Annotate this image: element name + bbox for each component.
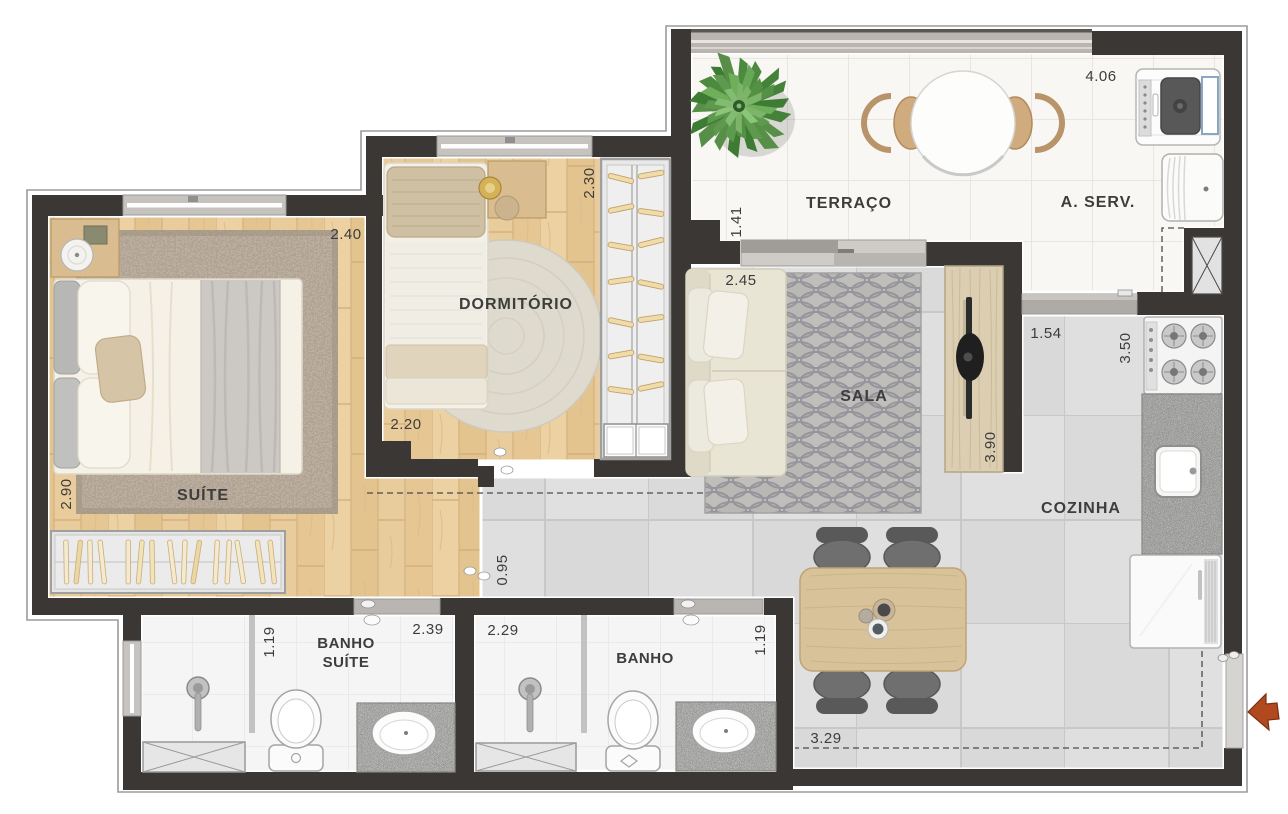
svg-text:1.54: 1.54 <box>1030 325 1061 342</box>
svg-text:0.95: 0.95 <box>494 554 511 585</box>
svg-text:SALA: SALA <box>840 388 888 405</box>
svg-text:2.29: 2.29 <box>487 622 518 639</box>
svg-text:2.90: 2.90 <box>58 478 75 509</box>
svg-text:TERRAÇO: TERRAÇO <box>806 195 892 212</box>
svg-text:BANHO: BANHO <box>317 635 375 652</box>
svg-text:1.19: 1.19 <box>752 624 769 655</box>
svg-text:1.41: 1.41 <box>728 206 745 237</box>
svg-text:BANHO: BANHO <box>616 650 674 667</box>
svg-text:3.90: 3.90 <box>982 431 999 462</box>
svg-text:SUÍTE: SUÍTE <box>177 485 229 504</box>
svg-text:3.50: 3.50 <box>1117 332 1134 363</box>
svg-text:DORMITÓRIO: DORMITÓRIO <box>459 294 573 313</box>
svg-text:4.06: 4.06 <box>1085 68 1116 85</box>
svg-text:2.39: 2.39 <box>412 621 443 638</box>
svg-text:COZINHA: COZINHA <box>1041 500 1121 517</box>
svg-text:1.19: 1.19 <box>261 626 278 657</box>
svg-text:2.45: 2.45 <box>725 272 756 289</box>
svg-text:2.40: 2.40 <box>330 226 361 243</box>
svg-text:2.30: 2.30 <box>581 167 598 198</box>
svg-text:SUÍTE: SUÍTE <box>323 654 370 671</box>
svg-text:3.29: 3.29 <box>810 730 841 747</box>
svg-text:2.20: 2.20 <box>390 416 421 433</box>
svg-text:A. SERV.: A. SERV. <box>1061 194 1136 211</box>
